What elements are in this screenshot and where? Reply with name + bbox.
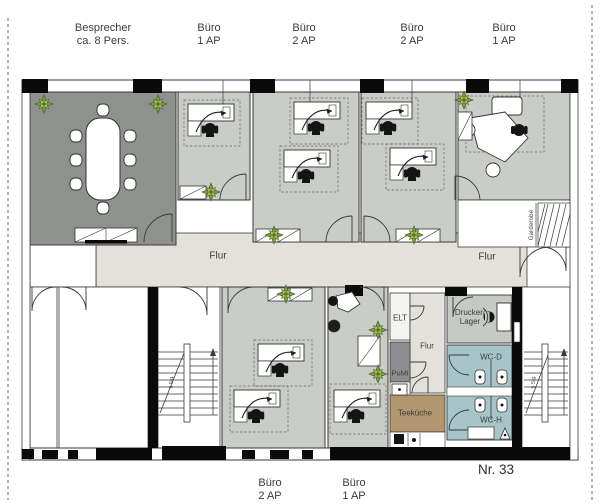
- label-garderobe: Garderobe: [529, 210, 535, 241]
- label-buero-top-3: Büro 2 AP: [400, 22, 423, 48]
- label-buero-bottom-2: Büro 1 AP: [342, 477, 365, 503]
- label-wc-d: WC-D: [480, 353, 502, 362]
- label-buero-top-4: Büro 1 AP: [492, 22, 515, 48]
- label-flur-small: Flur: [420, 342, 434, 351]
- label-buero-bottom-1: Büro 2 AP: [258, 477, 281, 503]
- plan-number: Nr. 33: [478, 462, 514, 477]
- sideboard-meeting: [75, 228, 137, 244]
- label-flur-main: Flur: [209, 251, 226, 262]
- label-elt: ELT: [393, 314, 407, 323]
- label-drucker-lager: Drucker/ Lager: [455, 308, 485, 326]
- label-stair-right: 9 Stg.: [531, 375, 537, 388]
- label-stair-left: 9 Stg.: [169, 375, 175, 388]
- label-buero-top-1: Büro 1 AP: [197, 22, 220, 48]
- label-pumi: PuMi: [391, 369, 408, 378]
- floorplan-canvas: Besprecher ca. 8 Pers. Büro 1 AP Büro 2 …: [0, 0, 600, 504]
- garderobe-rack: [536, 203, 570, 247]
- label-buero-top-2: Büro 2 AP: [292, 22, 315, 48]
- wall-niche: [514, 322, 520, 342]
- label-wc-h: WC-H: [480, 416, 502, 425]
- label-besprecher: Besprecher ca. 8 Pers.: [75, 22, 131, 48]
- label-teekueche: Teeküche: [398, 409, 432, 418]
- floorplan-drawing: [0, 0, 600, 504]
- label-flur-right: Flur: [478, 252, 495, 263]
